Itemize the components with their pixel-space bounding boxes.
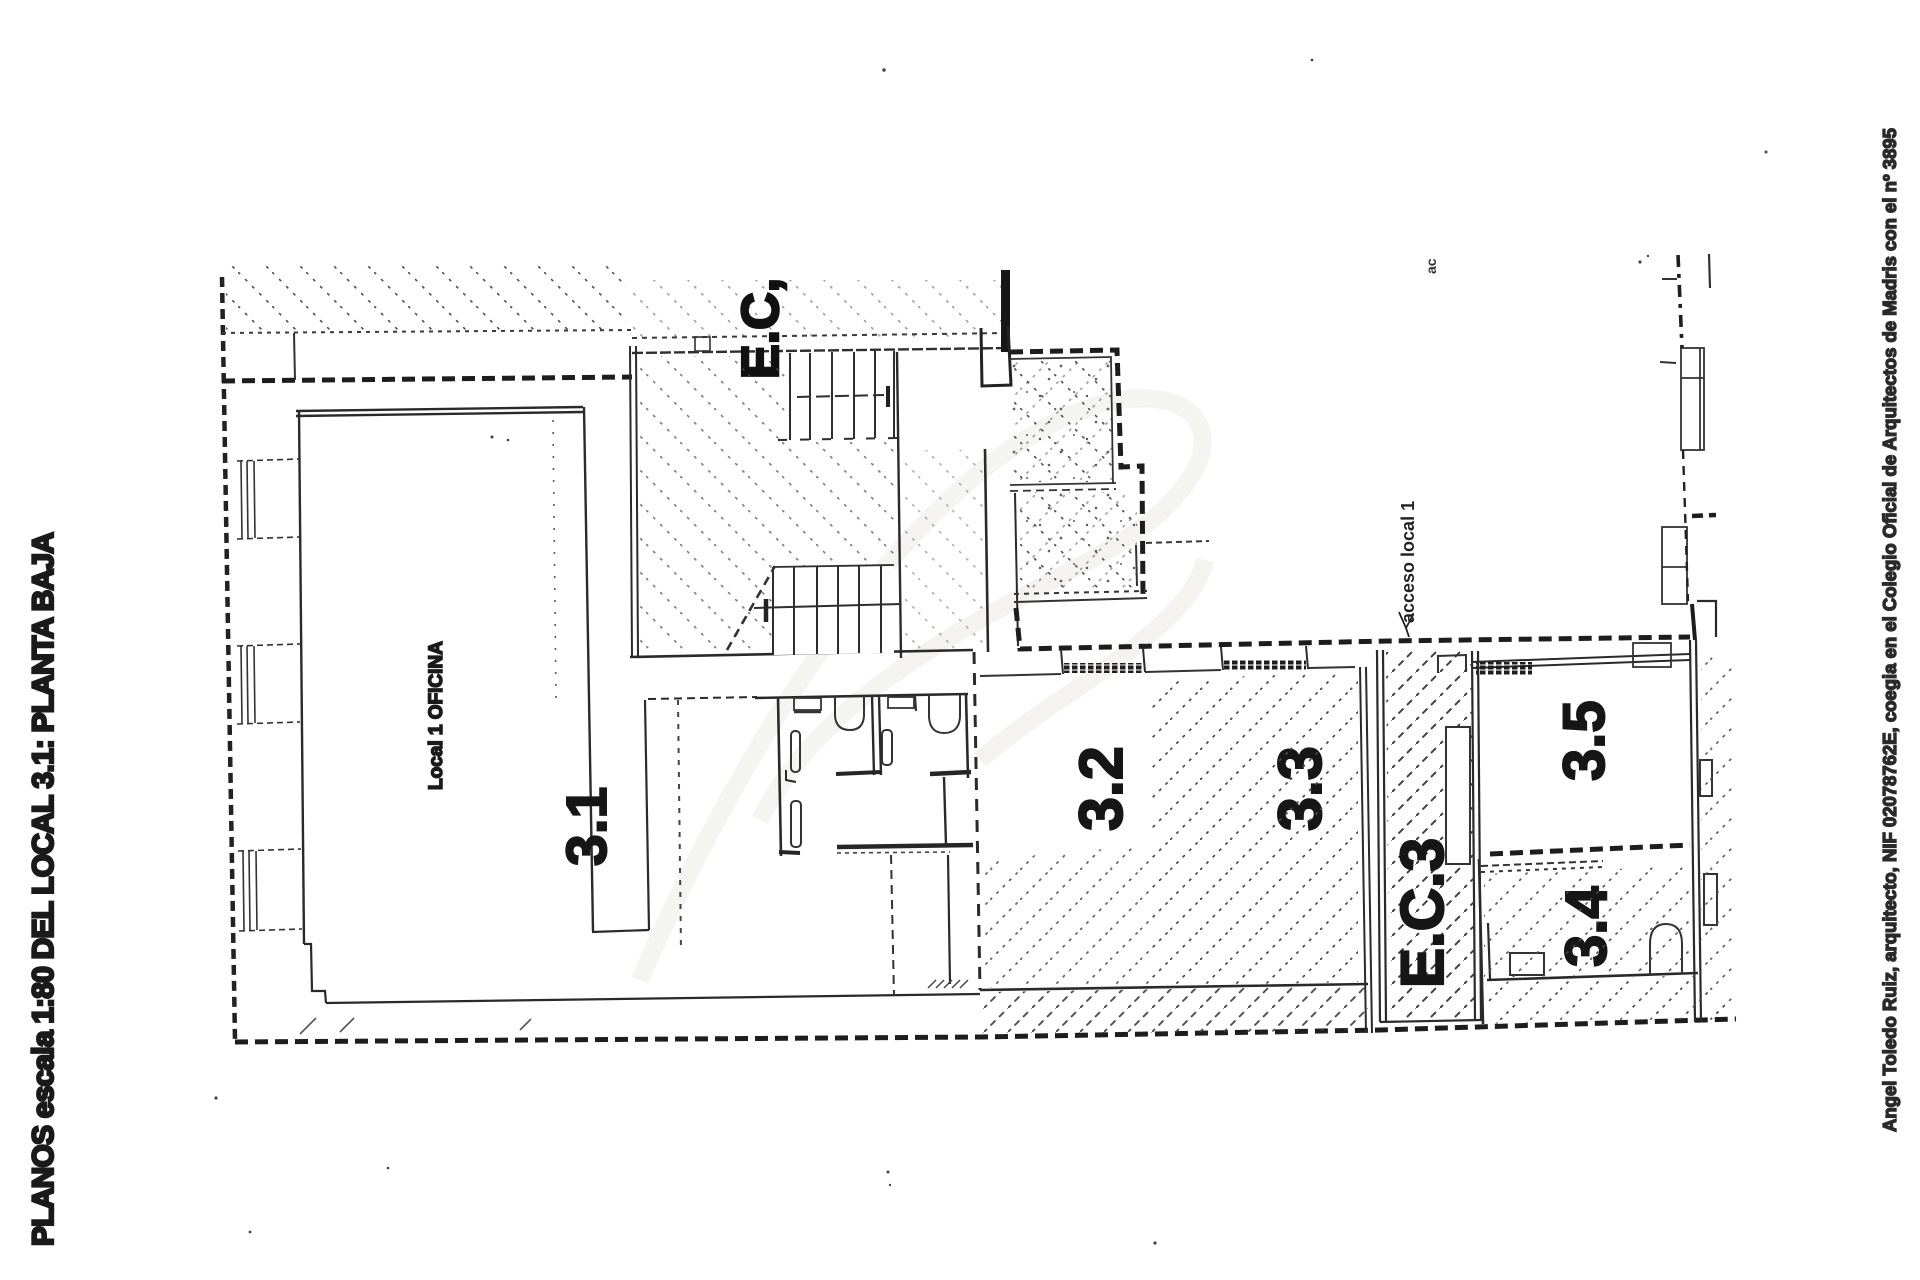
svg-text:PLANOS escala 1:80 DEL LOCAL: PLANOS escala 1:80 DEL LOCAL 3.1: PLANTA…	[27, 533, 60, 1246]
svg-text:3.1: 3.1	[555, 787, 619, 866]
svg-text:Angel Toledo Ruiz, arquitecto,: Angel Toledo Ruiz, arquitecto, NIF 02078…	[1879, 128, 1900, 1132]
svg-text:E.C.3: E.C.3	[1389, 838, 1456, 988]
svg-text:3.2: 3.2	[1067, 746, 1135, 831]
svg-text:3.5: 3.5	[1552, 700, 1617, 781]
svg-text:Local 1 OFICINA: Local 1 OFICINA	[426, 641, 447, 790]
svg-text:acceso local 1: acceso local 1	[1398, 501, 1418, 623]
svg-text:ac: ac	[1423, 258, 1439, 274]
